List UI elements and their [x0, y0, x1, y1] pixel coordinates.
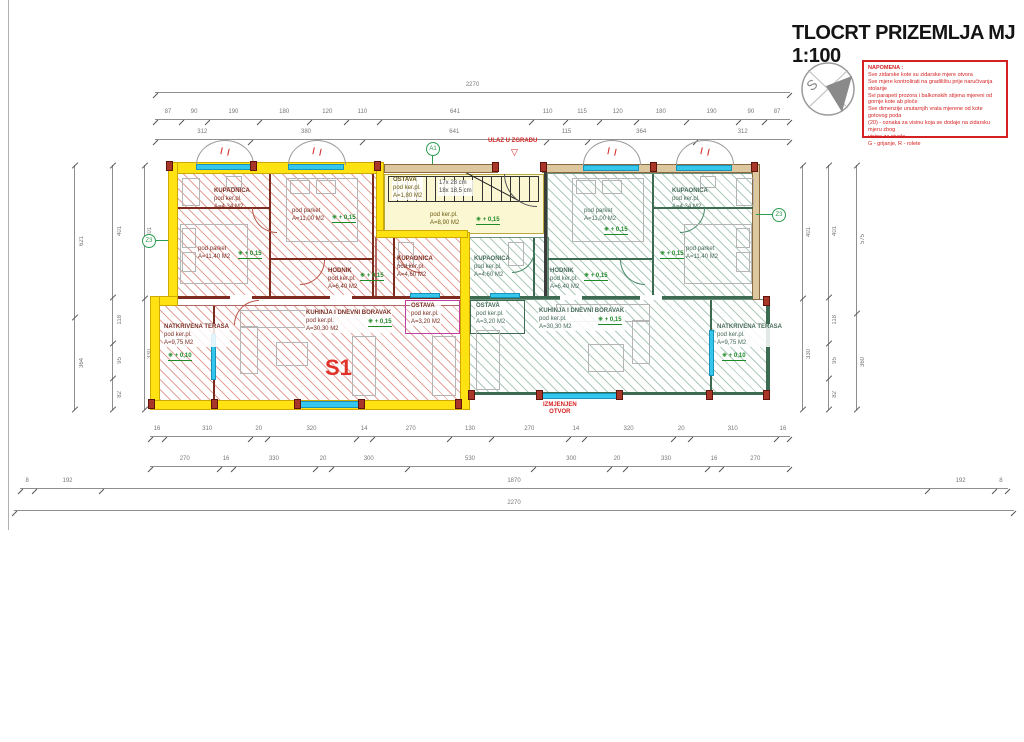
- window-mark: [312, 147, 321, 156]
- elevation-marker: ✳ + 0,15: [476, 216, 500, 225]
- elevation-marker: ✳ + 0,15: [332, 214, 356, 223]
- room-label-terasa-left: NATKRIVENA TERASA pod ker.pl. A=9,75 M2: [163, 324, 230, 347]
- s1-outline-left-lower: [150, 296, 160, 410]
- kitchen-island: [352, 336, 376, 396]
- room-label-bedroom-left-2: pod parket A=11,00 M2: [292, 208, 324, 224]
- axis-tag-left: Z3: [142, 234, 156, 248]
- room-label-bedroom-right-1: pod parket A=11,40 M2: [686, 246, 718, 262]
- entrance-arrow-icon: ▽: [511, 147, 518, 158]
- napomena-heading: NAPOMENA :: [868, 65, 1002, 72]
- wall-pier: [650, 162, 657, 172]
- unit-label-s1: S1: [325, 355, 352, 381]
- room-label-kupaonica-right: KUPAONICA pod ker.pl. A=4,34 M2: [672, 188, 708, 211]
- central-wall: [544, 162, 547, 298]
- stair-dimension-note: 17x 28 cm 18x 18,5 cm: [438, 180, 473, 196]
- wall-pier: [536, 390, 543, 400]
- dimension-line-bottom-overall: 2270: [14, 500, 1014, 511]
- window: [196, 164, 252, 170]
- coffee-table: [276, 342, 308, 366]
- wall-pier: [763, 390, 770, 400]
- napomena-line: Sve zidarske kote su zidarske mjere otvo…: [868, 72, 1002, 79]
- s1-outline-stair-bottom: [376, 230, 468, 238]
- window: [583, 165, 639, 171]
- elevation-marker: ✳ + 0,15: [584, 272, 608, 281]
- terrace-edge-right: [766, 300, 770, 395]
- napomena-line: G - grijanje, R - rolete: [868, 141, 1002, 148]
- north-compass-icon: S: [798, 56, 860, 122]
- star-icon: ✳: [168, 353, 173, 359]
- wall-pier: [148, 399, 155, 409]
- sofa: [632, 320, 650, 364]
- napomena-note-box: NAPOMENA : Sve zidarske kote su zidarske…: [862, 60, 1008, 138]
- wall-pier: [294, 399, 301, 409]
- window-mark: [607, 147, 616, 156]
- pillow: [290, 180, 310, 194]
- wall-pier: [751, 162, 758, 172]
- wall-pier: [166, 161, 173, 171]
- elevation-marker: ✳ + 0,10: [722, 352, 746, 361]
- s1-outline-stair-left: [376, 162, 384, 238]
- kitchen-cabinet: [476, 330, 500, 390]
- elevation-marker: ✳ + 0,15: [238, 250, 262, 259]
- kitchen-cabinet: [432, 336, 456, 396]
- pillow: [316, 180, 336, 194]
- table: [588, 344, 624, 372]
- wall-pier: [250, 161, 257, 171]
- room-label-kupaonica-left: KUPAONICA pod ker.pl. A=4,34 M2: [214, 188, 250, 211]
- star-icon: ✳: [722, 353, 727, 359]
- napomena-line: Sve mjere kontrolirati na gradilištu pri…: [868, 79, 1002, 93]
- star-icon: ✳: [332, 215, 337, 221]
- star-icon: ✳: [368, 319, 373, 325]
- napomena-line: visine za nivele: [868, 134, 1002, 141]
- star-icon: ✳: [604, 227, 609, 233]
- wall-pier: [455, 399, 462, 409]
- dimension-line-bottom-2: 270 16 330 20 300 530 300 20 330 16 270: [150, 456, 790, 467]
- shower: [508, 242, 524, 266]
- pillow: [736, 252, 750, 272]
- room-label-ostava-stair: OSTAVA pod ker.pl. A=1,80 M2: [392, 177, 423, 200]
- window: [410, 293, 440, 298]
- dimension-line-right-inner: 401 330: [802, 165, 815, 410]
- star-icon: ✳: [476, 217, 481, 223]
- dimension-line-bottom-1: 16 310 20 320 14 270 130 270 14 320 20 3…: [150, 426, 790, 437]
- room-label-bedroom-right-2: pod parket A=11,00 M2: [584, 208, 616, 224]
- wall-pier: [374, 161, 381, 171]
- wall: [652, 174, 654, 298]
- room-label-bedroom-left-1: pod parket A=11,40 M2: [198, 246, 230, 262]
- elevation-marker: ✳ + 0,15: [360, 272, 384, 281]
- room-label-ostava-left: OSTAVA pod ker.pl. A=3,20 M2: [410, 303, 441, 326]
- entrance-opening: [498, 162, 542, 174]
- room-label-kupaonica-right-2: KUPAONICA pod ker.pl. A=4,60 M2: [474, 256, 510, 279]
- axis-tag-right: Z3: [772, 208, 786, 222]
- pillow: [182, 252, 196, 272]
- floor-plan-sheet: TLOCRT PRIZEMLJA MJ 1:100 S NAPOMENA : S…: [0, 0, 1024, 742]
- elevation-marker: ✳ + 0,15: [598, 316, 622, 325]
- pillow: [182, 228, 196, 248]
- star-icon: ✳: [360, 273, 365, 279]
- elevation-marker: ✳ + 0,15: [368, 318, 392, 327]
- wall-pier: [358, 399, 365, 409]
- shower: [182, 178, 200, 206]
- sheet-edge-line: [8, 0, 9, 530]
- dimension-line-right-middle: 401 118 95 82: [828, 165, 841, 410]
- sofa: [240, 326, 258, 374]
- napomena-line: Sve dimenzije unutarnjih vrata mjerene o…: [868, 106, 1002, 120]
- elevation-marker: ✳ + 0,15: [604, 226, 628, 235]
- wall-pier: [706, 390, 713, 400]
- sink: [700, 176, 716, 188]
- shower: [736, 178, 754, 206]
- s1-outline-left-upper: [168, 162, 178, 302]
- dimension-line-left-middle: 401 118 95 82: [112, 165, 127, 410]
- napomena-line: Svi parapeti prozora i balkonskih stijen…: [868, 93, 1002, 107]
- dimension-line-bottom-3: 8 192 1870 192 8: [20, 478, 1008, 489]
- room-label-terasa-right: NATKRIVENA TERASA pod ker.pl. A=9,75 M2: [716, 324, 783, 347]
- wall-pier: [540, 162, 547, 172]
- changed-opening-label: IZMJENJEN OTVOR: [543, 402, 577, 416]
- wall-pier: [211, 399, 218, 409]
- window: [540, 393, 618, 399]
- s1-outline-right-divider: [460, 232, 470, 410]
- axis-tag-top: A1: [426, 142, 440, 156]
- room-label-hodnik-right: HODNIK pod ker.pl. A=6,40 M2: [550, 268, 579, 291]
- terrace-door-right: [709, 330, 714, 376]
- dimension-line-right-outer: 575 360: [856, 165, 869, 410]
- wall-pier: [763, 296, 770, 306]
- compass-letter: S: [803, 76, 820, 94]
- dimension-line-top-overall: 2270: [155, 82, 790, 93]
- elevation-marker: ✳ + 0,10: [168, 352, 192, 361]
- window-mark: [700, 147, 709, 156]
- dimension-line-top-segments: 87 90 190 180 120 110 641 110 115 120 18…: [155, 109, 790, 120]
- pillow: [736, 228, 750, 248]
- napomena-line: (20) - oznaka za visinu koja se dodaje n…: [868, 120, 1002, 134]
- pillow: [602, 180, 622, 194]
- door-opening: [230, 295, 252, 300]
- room-label-hodnik-left: HODNIK pod ker.pl. A=6,40 M2: [328, 268, 357, 291]
- window: [296, 401, 360, 408]
- wall-pier: [492, 162, 499, 172]
- wall-pier: [468, 390, 475, 400]
- wall: [393, 238, 395, 298]
- room-label-ostava-right: OSTAVA pod ker.pl. A=3,20 M2: [475, 303, 506, 326]
- star-icon: ✳: [584, 273, 589, 279]
- wall-pier: [616, 390, 623, 400]
- wall: [533, 238, 535, 298]
- window: [676, 165, 732, 171]
- room-label-corridor: pod ker.pl. A=8,90 M2: [430, 212, 459, 228]
- star-icon: ✳: [598, 317, 603, 323]
- window: [288, 164, 344, 170]
- door-opening: [330, 295, 352, 300]
- star-icon: ✳: [238, 251, 243, 257]
- room-label-kupaonica-left-2: KUPAONICA pod ker.pl. A=4,60 M2: [397, 256, 433, 279]
- elevation-marker: ✳ + 0,15: [660, 250, 684, 259]
- star-icon: ✳: [660, 251, 665, 257]
- sink: [226, 176, 242, 188]
- door-opening: [640, 295, 662, 300]
- dimension-line-top-axes: 312 380 641 115 364 312: [155, 129, 790, 140]
- window-mark: [220, 147, 229, 156]
- entrance-label: ULAZ U ZGRADU: [488, 138, 537, 145]
- door-opening: [560, 295, 582, 300]
- pillow: [576, 180, 596, 194]
- wall: [269, 174, 271, 298]
- dimension-line-left-outer: 621 364: [74, 165, 89, 410]
- window: [490, 293, 520, 298]
